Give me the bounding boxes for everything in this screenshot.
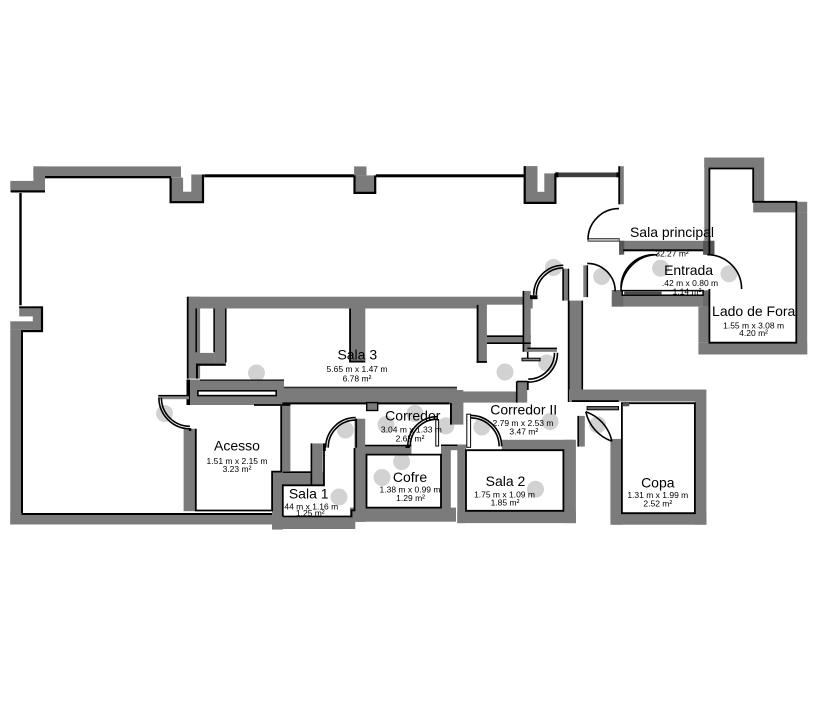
svg-text:Acesso: Acesso (214, 438, 260, 454)
svg-text:Sala 3: Sala 3 (337, 347, 377, 363)
svg-text:3.23 m²: 3.23 m² (223, 464, 252, 474)
svg-text:Corredor: Corredor (385, 407, 441, 423)
svg-text:1.85 m²: 1.85 m² (491, 497, 520, 507)
svg-text:6.78 m²: 6.78 m² (343, 374, 372, 384)
svg-text:Lado de Fora: Lado de Fora (712, 303, 795, 319)
svg-text:1.14 m²: 1.14 m² (673, 287, 702, 297)
svg-text:Cofre: Cofre (393, 469, 427, 485)
svg-text:3.47 m²: 3.47 m² (509, 426, 538, 436)
svg-text:Sala 1: Sala 1 (289, 486, 329, 502)
svg-text:Entrada: Entrada (664, 262, 713, 278)
svg-text:Sala 2: Sala 2 (486, 473, 526, 489)
svg-text:32.27 m²: 32.27 m² (655, 248, 689, 258)
svg-text:1.25 m²: 1.25 m² (296, 508, 325, 518)
svg-text:Copa: Copa (641, 474, 675, 490)
svg-text:2.65 m²: 2.65 m² (396, 433, 425, 443)
svg-text:1.29 m²: 1.29 m² (396, 493, 425, 503)
svg-text:4.20 m²: 4.20 m² (739, 328, 768, 338)
svg-text:2.52 m²: 2.52 m² (643, 499, 672, 509)
svg-text:Corredor II: Corredor II (490, 402, 557, 418)
svg-text:Sala principal: Sala principal (630, 224, 714, 240)
svg-text:5.65 m x 1.47 m: 5.65 m x 1.47 m (327, 364, 388, 374)
